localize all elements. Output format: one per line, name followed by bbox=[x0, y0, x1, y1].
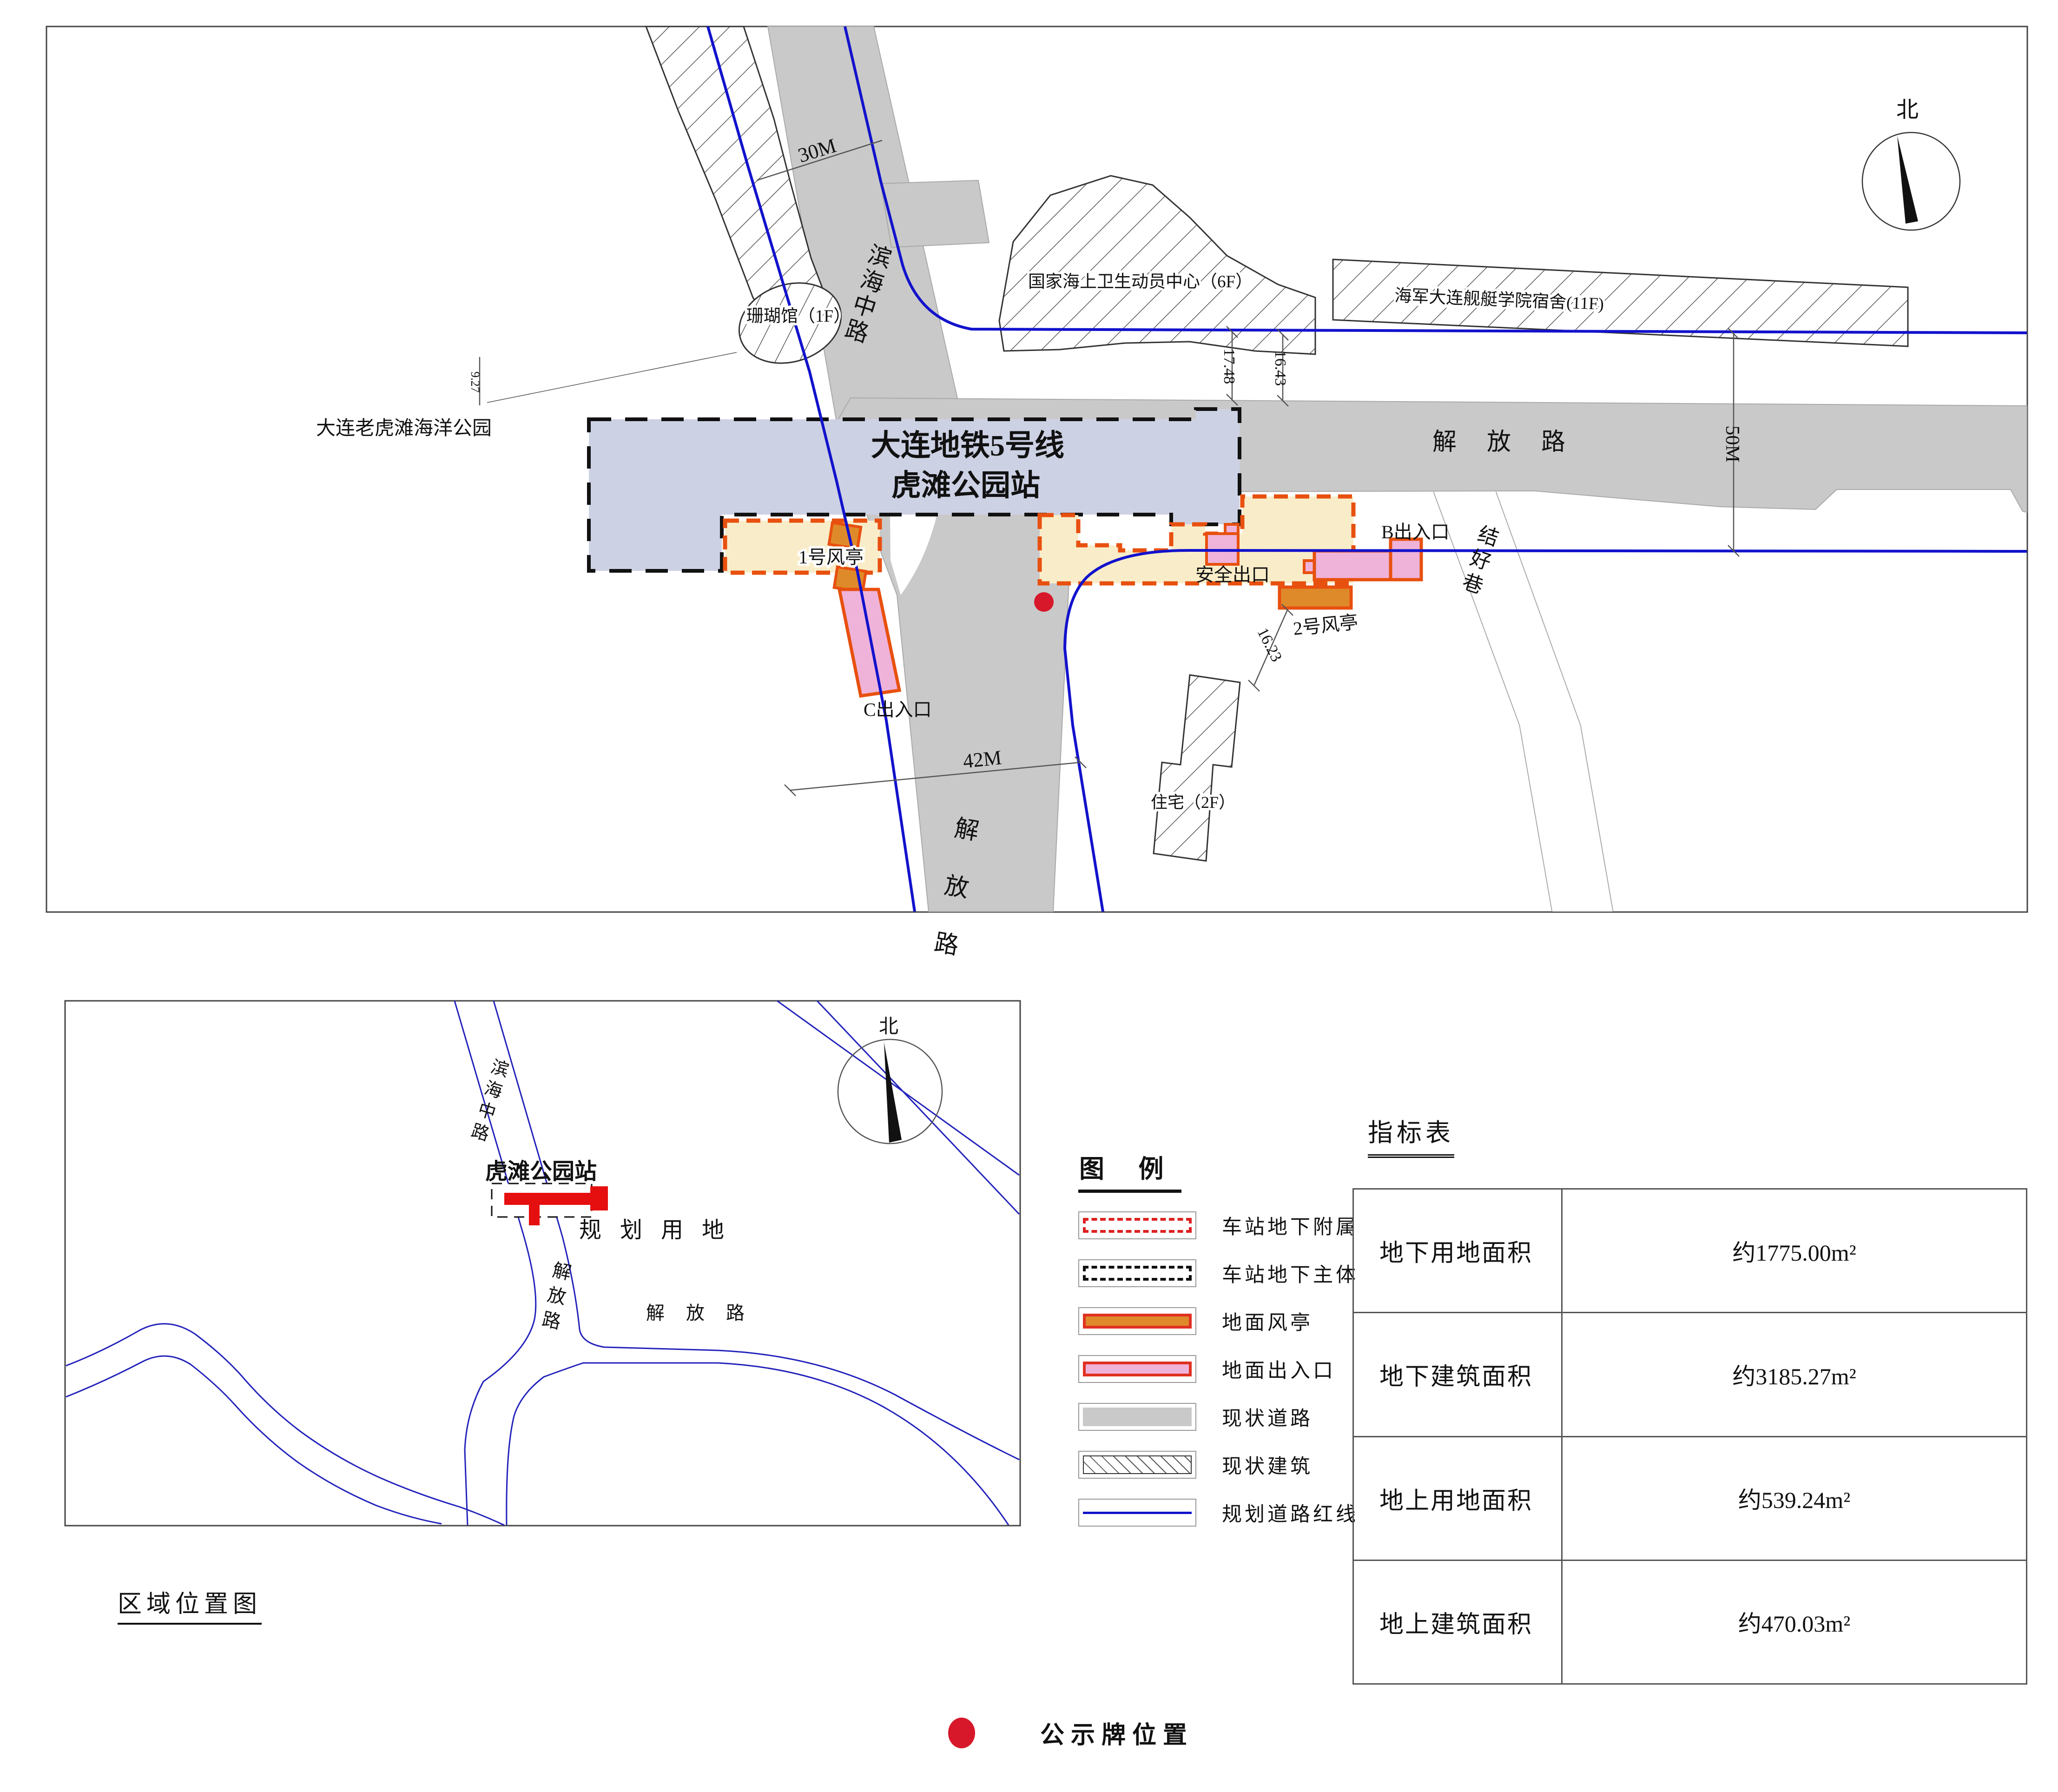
road-side-stub bbox=[881, 180, 989, 247]
exit-b-block bbox=[1391, 539, 1421, 580]
region-planning-label: 规 划 用 地 bbox=[579, 1218, 731, 1243]
table-row: 地上用地面积 约539.24m² bbox=[1354, 1436, 2026, 1560]
legend-item-label: 地面风亭 bbox=[1222, 1307, 1313, 1336]
north-region-label: 北 bbox=[879, 1016, 898, 1038]
road-jiefang-east-label: 解 放 路 bbox=[1432, 429, 1577, 456]
bldg-health-label: 国家海上卫生动员中心（6F） bbox=[1028, 272, 1253, 291]
vent1-label: 1号风亭 bbox=[798, 547, 864, 568]
table-row-label: 地上用地面积 bbox=[1354, 1437, 1563, 1560]
dim-50m: 50M bbox=[1722, 425, 1743, 462]
bldg-coral-label: 珊瑚馆（1F） bbox=[746, 306, 851, 326]
park-label: 大连老虎滩海洋公园 bbox=[316, 418, 492, 439]
bldg-residence-label: 住宅（2F） bbox=[1151, 793, 1235, 812]
legend-item-label: 车站地下主体 bbox=[1222, 1259, 1359, 1288]
notice-label: 公示牌位置 bbox=[1040, 1715, 1194, 1750]
legend-swatch-vent-icon bbox=[1078, 1307, 1196, 1335]
legend-swatch-redline-icon bbox=[1078, 1499, 1196, 1527]
table-row-label: 地下用地面积 bbox=[1354, 1190, 1563, 1312]
dim-927: 9.27 bbox=[468, 371, 482, 393]
region-map: 北 虎滩公园站 规 划 用 地 解 放 路 解放路 滨海中路 bbox=[65, 1001, 1020, 1526]
legend-item-label: 车站地下附属 bbox=[1222, 1211, 1359, 1240]
legend-item-label: 现状道路 bbox=[1222, 1402, 1313, 1431]
table-row-value: 约3185.27m² bbox=[1563, 1313, 2026, 1435]
table-row-label: 地上建筑面积 bbox=[1354, 1561, 1563, 1683]
legend-swatch-exit-icon bbox=[1078, 1355, 1196, 1383]
dim-1748: 17.48 bbox=[1220, 349, 1238, 384]
dim-1643: 16.43 bbox=[1272, 350, 1289, 386]
legend-swatch-road-icon bbox=[1078, 1403, 1196, 1431]
legend-item-label: 规划道路红线 bbox=[1222, 1498, 1359, 1527]
exit-b-slab bbox=[1314, 551, 1391, 580]
table-row-label: 地下建筑面积 bbox=[1354, 1313, 1563, 1435]
notice-dot-on-plan bbox=[1034, 592, 1054, 612]
main-map: 北 大连地铁5号线 虎滩公园站 大连老虎滩海洋公园 滨海中路 解 放 路 解 放… bbox=[46, 26, 2027, 961]
vent-1a bbox=[829, 522, 861, 549]
table-title: 指标表 bbox=[1368, 1112, 1454, 1158]
table-row: 地上建筑面积 约470.03m² bbox=[1354, 1560, 2026, 1683]
legend-title: 图 例 bbox=[1078, 1148, 1181, 1193]
planning-disclosure-page: 北 大连地铁5号线 虎滩公园站 大连老虎滩海洋公园 滨海中路 解 放 路 解 放… bbox=[0, 0, 2058, 1792]
dim-42m: 42M bbox=[962, 746, 1003, 773]
table-row: 地下建筑面积 约3185.27m² bbox=[1354, 1312, 2026, 1435]
exit-c-label: C出入口 bbox=[864, 699, 932, 720]
table-row-value: 约1775.00m² bbox=[1563, 1190, 2026, 1312]
exit-b-label: B出入口 bbox=[1381, 522, 1450, 542]
region-jiefang-east-label: 解 放 路 bbox=[646, 1303, 753, 1323]
exit-safe-shape bbox=[1207, 534, 1238, 564]
table-row-value: 约539.24m² bbox=[1563, 1437, 2026, 1560]
table-row: 地下用地面积 约1775.00m² bbox=[1354, 1190, 2026, 1312]
legend-item-label: 现状建筑 bbox=[1222, 1450, 1313, 1479]
station-title-line1: 大连地铁5号线 bbox=[871, 429, 1064, 462]
region-map-frame bbox=[65, 1001, 1020, 1526]
region-station-label: 虎滩公园站 bbox=[485, 1159, 597, 1184]
legend-swatch-building-icon bbox=[1078, 1451, 1196, 1479]
legend-item-label: 地面出入口 bbox=[1222, 1355, 1336, 1383]
region-map-title: 区域位置图 bbox=[118, 1584, 262, 1625]
north-label: 北 bbox=[1896, 98, 1919, 122]
table-row-value: 约470.03m² bbox=[1563, 1561, 2026, 1683]
vent-2 bbox=[1280, 587, 1351, 608]
indicator-table: 地下用地面积 约1775.00m² 地下建筑面积 约3185.27m² 地上用地… bbox=[1352, 1188, 2027, 1685]
legend-swatch-red-dash-icon bbox=[1078, 1211, 1196, 1239]
notice-legend: 公示牌位置 bbox=[948, 1715, 1194, 1750]
safe-exit-label: 安全出口 bbox=[1195, 564, 1270, 585]
station-title-line2: 虎滩公园站 bbox=[891, 469, 1040, 502]
notice-dot-icon bbox=[948, 1718, 975, 1748]
legend-swatch-black-dash-icon bbox=[1078, 1259, 1196, 1287]
